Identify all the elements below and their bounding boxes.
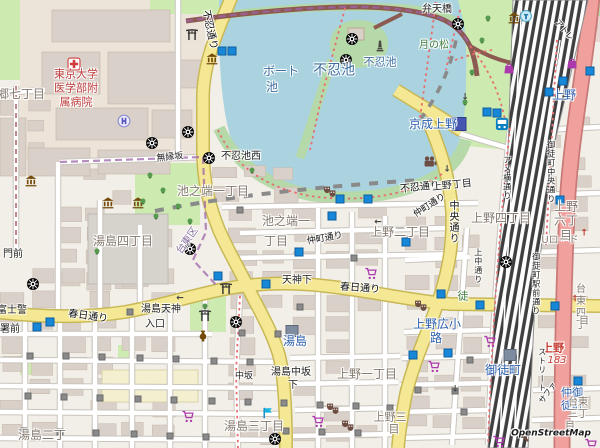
building xyxy=(405,275,429,289)
building xyxy=(273,168,292,180)
building xyxy=(212,167,236,177)
building xyxy=(464,337,482,353)
map-canvas[interactable]: ←↓←↓↓↑↑↑ 東京大学 医学部附 属病院郷七丁目無縁坂不忍池西池之端一丁目池… xyxy=(0,0,600,448)
building xyxy=(568,396,591,409)
building xyxy=(62,336,86,353)
building xyxy=(230,338,255,355)
building xyxy=(463,417,485,428)
building xyxy=(113,191,131,205)
building xyxy=(32,422,57,436)
building xyxy=(29,101,51,111)
building xyxy=(33,291,55,308)
building xyxy=(464,358,487,372)
building xyxy=(405,236,426,250)
osm-attribution[interactable]: OpenStreetMap xyxy=(511,429,591,440)
building xyxy=(28,120,44,131)
building xyxy=(327,340,351,353)
benten-hall-building xyxy=(348,28,364,40)
building xyxy=(58,207,82,222)
building xyxy=(433,416,453,428)
building xyxy=(462,316,483,328)
building xyxy=(62,269,85,283)
building xyxy=(33,269,54,283)
building xyxy=(0,293,24,307)
ueno-park xyxy=(458,0,513,150)
building xyxy=(464,397,485,409)
building xyxy=(294,295,315,309)
building xyxy=(244,166,266,177)
building xyxy=(231,317,254,334)
building xyxy=(326,361,353,373)
building xyxy=(436,335,458,349)
map-basemap xyxy=(0,0,600,448)
